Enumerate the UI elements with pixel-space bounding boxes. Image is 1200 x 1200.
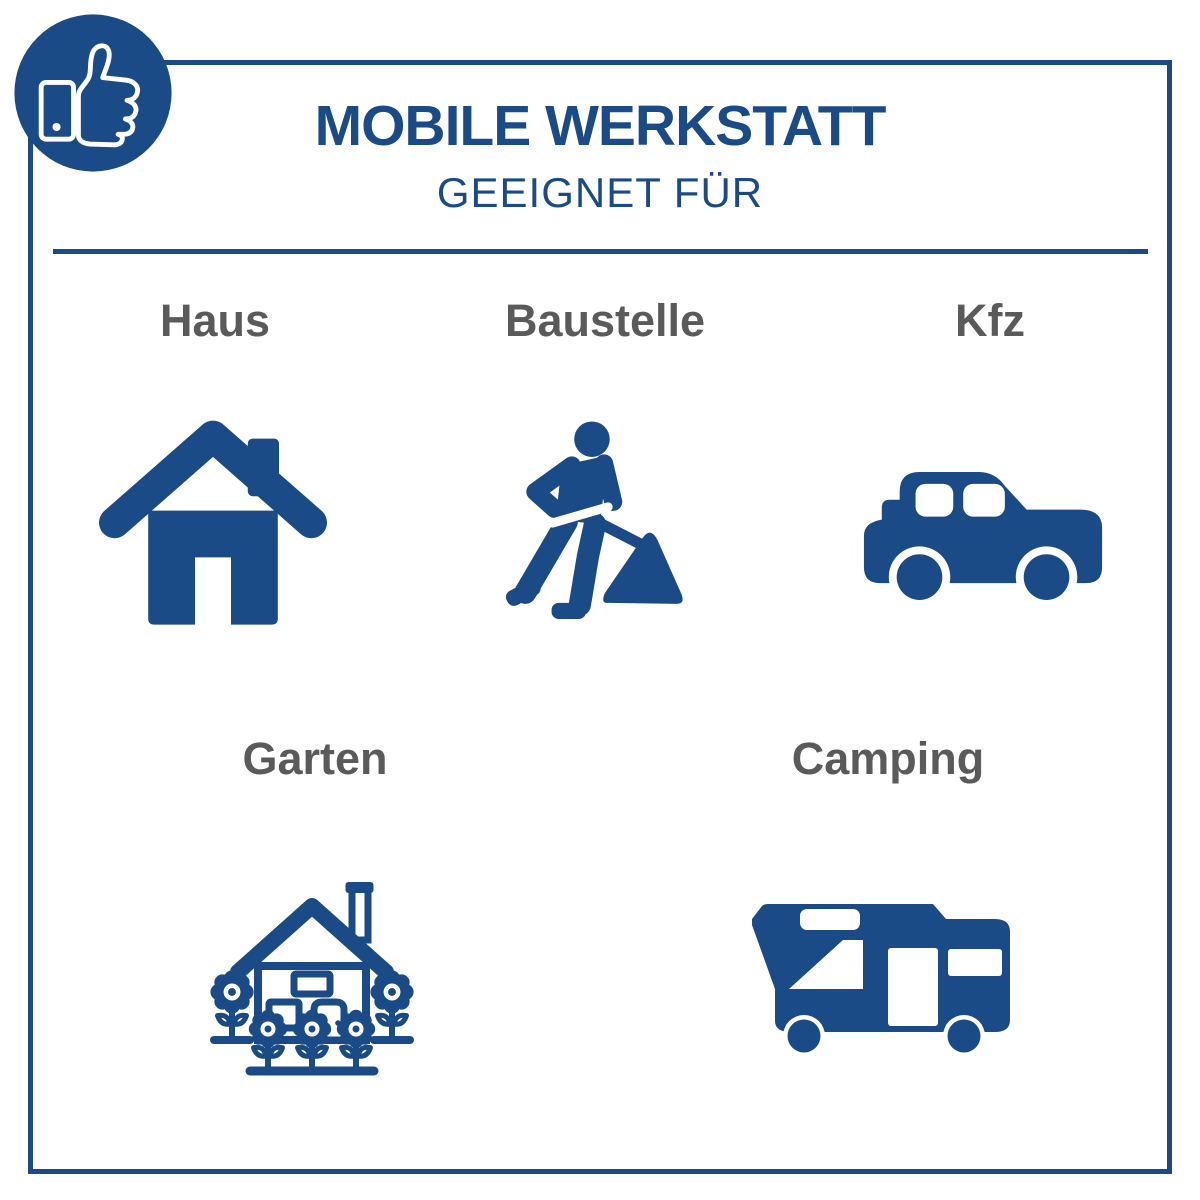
- category-label-camping: Camping: [738, 736, 1038, 781]
- page-title: MOBILE WERKSTATT: [28, 98, 1172, 155]
- thumbs-up-badge: [12, 12, 174, 174]
- infographic-canvas: MOBILE WERKSTATT GEEIGNET FÜR Haus Baust…: [0, 0, 1200, 1200]
- thumbs-up-phone-icon: [12, 12, 174, 174]
- header: MOBILE WERKSTATT GEEIGNET FÜR: [28, 98, 1172, 214]
- category-icon-haus: [93, 405, 333, 645]
- category-label-haus: Haus: [65, 298, 365, 343]
- header-divider: [53, 249, 1148, 254]
- house-icon: [93, 405, 333, 645]
- page-subtitle: GEEIGNET FÜR: [28, 172, 1172, 214]
- construction-worker-icon: [495, 398, 697, 638]
- category-icon-camping: [750, 898, 1022, 1058]
- camper-van-icon: [750, 898, 1022, 1058]
- category-icon-baustelle: [495, 398, 697, 638]
- category-label-kfz: Kfz: [840, 298, 1140, 343]
- category-icon-garten: [206, 872, 418, 1080]
- category-label-baustelle: Baustelle: [455, 298, 755, 343]
- car-icon: [856, 448, 1114, 611]
- category-label-garten: Garten: [165, 736, 465, 781]
- garden-house-flowers-icon: [206, 872, 418, 1080]
- category-icon-kfz: [856, 448, 1114, 611]
